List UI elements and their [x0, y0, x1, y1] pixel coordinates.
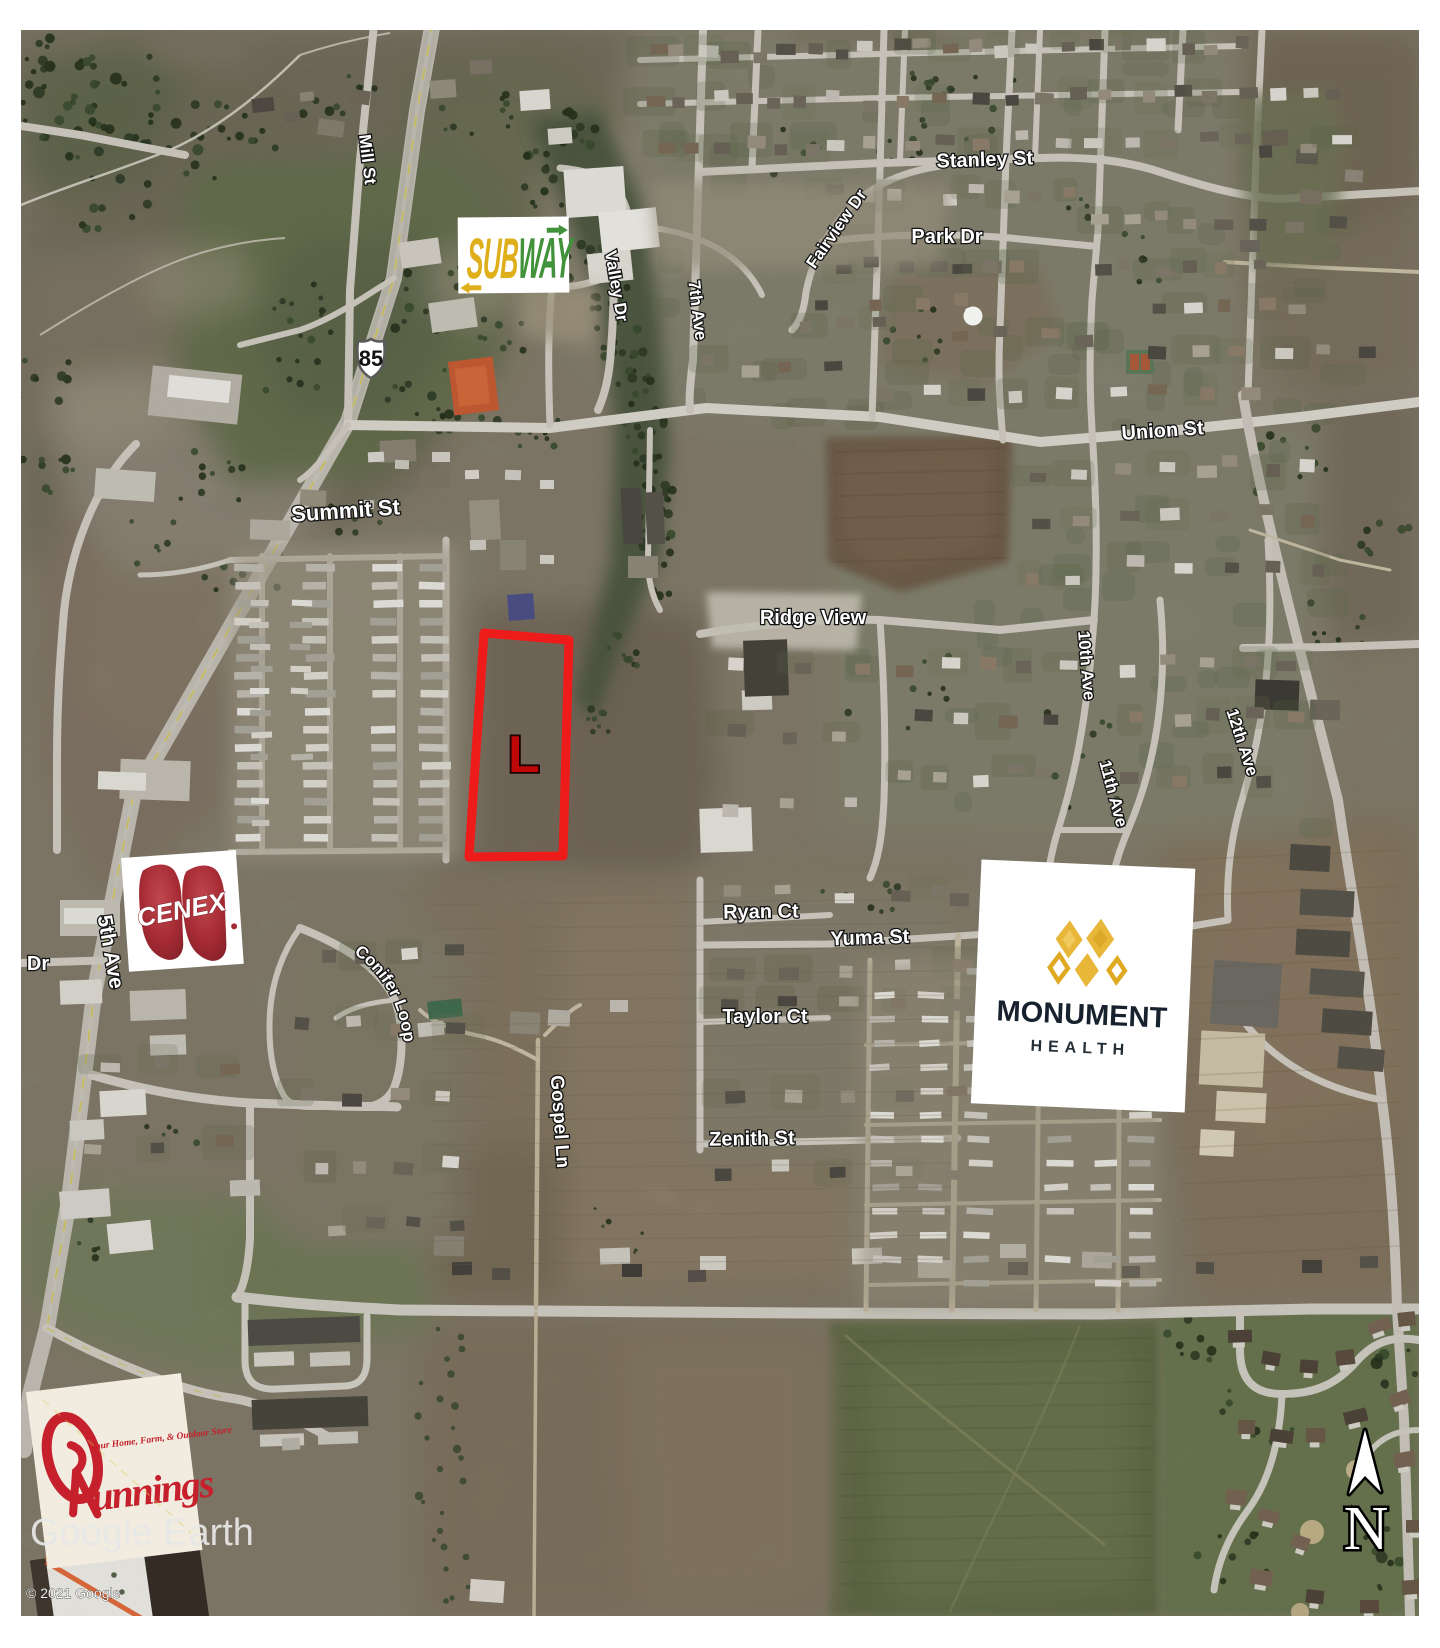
svg-text:Zenith St: Zenith St: [709, 1127, 795, 1150]
svg-text:SUBWAY: SUBWAY: [466, 227, 576, 291]
svg-text:Ryan Ct: Ryan Ct: [723, 900, 799, 923]
svg-text:Yuma St: Yuma St: [830, 926, 910, 951]
svg-text:Dr: Dr: [27, 953, 49, 975]
svg-text:N: N: [1344, 1495, 1389, 1563]
svg-text:Park Dr: Park Dr: [911, 226, 982, 248]
svg-text:Google Earth: Google Earth: [30, 1512, 254, 1554]
svg-text:Taylor Ct: Taylor Ct: [722, 1006, 808, 1028]
svg-text:L: L: [508, 726, 540, 784]
svg-text:Stanley St: Stanley St: [936, 147, 1034, 172]
svg-text:85: 85: [359, 346, 383, 371]
svg-text:© 2021 Google: © 2021 Google: [26, 1585, 121, 1601]
svg-text:Ridge View: Ridge View: [760, 607, 867, 629]
